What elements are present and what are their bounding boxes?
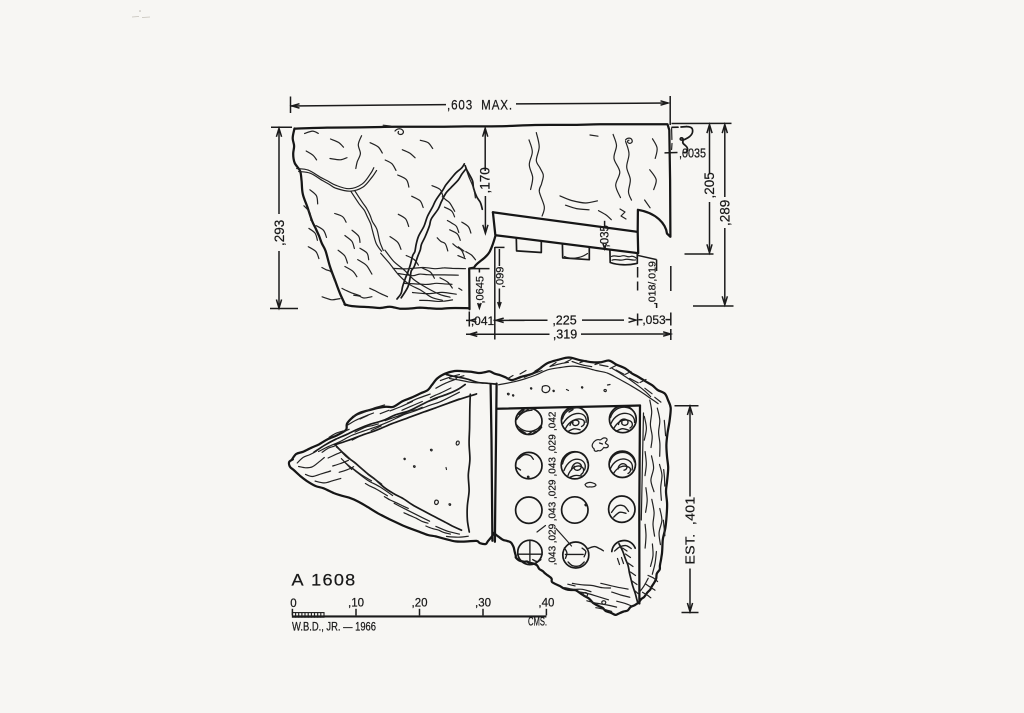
- svg-text:,289: ,289: [717, 200, 732, 226]
- svg-text:,042: ,042: [548, 411, 559, 431]
- svg-text:,029: ,029: [548, 523, 559, 543]
- svg-text:,029: ,029: [548, 434, 559, 454]
- svg-text:,205: ,205: [702, 172, 717, 198]
- svg-text:,0035: ,0035: [679, 147, 706, 161]
- svg-text:W.B.D., JR. — 1966: W.B.D., JR. — 1966: [292, 622, 376, 634]
- svg-text:,043: ,043: [548, 545, 559, 565]
- svg-text:A 1608: A 1608: [292, 571, 357, 590]
- svg-text:,20: ,20: [412, 598, 428, 610]
- svg-text:,0645: ,0645: [475, 276, 487, 304]
- svg-text:,018/,019: ,018/,019: [646, 261, 658, 305]
- svg-text:CMS.: CMS.: [528, 617, 547, 629]
- svg-text:,40: ,40: [538, 598, 554, 610]
- svg-text:EST. ,401: EST. ,401: [683, 497, 698, 565]
- svg-text:,043: ,043: [548, 501, 559, 521]
- svg-text:,319: ,319: [553, 328, 577, 342]
- svg-text:,043: ,043: [548, 457, 559, 477]
- svg-text:,170: ,170: [478, 167, 493, 193]
- svg-text:,30: ,30: [475, 598, 491, 610]
- svg-text:,053: ,053: [642, 313, 666, 327]
- svg-text:,225: ,225: [552, 314, 576, 328]
- svg-text:,293: ,293: [272, 220, 287, 246]
- svg-text:,029: ,029: [548, 479, 559, 499]
- svg-text:,603 MAX.: ,603 MAX.: [447, 98, 513, 113]
- svg-text:,10: ,10: [348, 598, 364, 610]
- svg-text:,035: ,035: [599, 225, 611, 247]
- svg-text:0: 0: [290, 598, 296, 610]
- svg-text:,099: ,099: [495, 267, 507, 288]
